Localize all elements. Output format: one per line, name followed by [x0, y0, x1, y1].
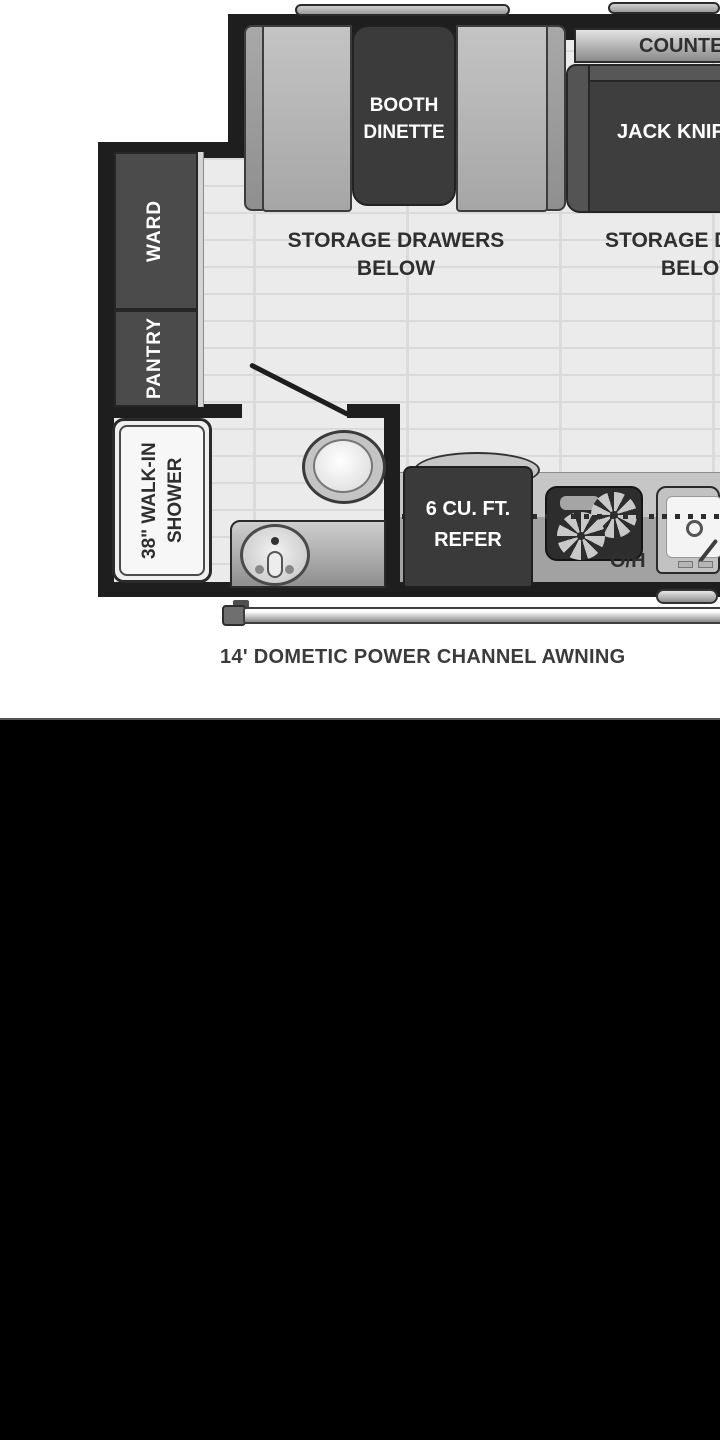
toilet-bowl: [313, 439, 373, 493]
exterior-mask: [0, 0, 228, 142]
sofa-armrest: [566, 64, 590, 213]
dinette-armrest-right: [546, 25, 566, 211]
refrigerator-label: 6 CU. FT. REFER: [403, 494, 533, 556]
shower-label-line1: 38" WALK-IN: [138, 418, 162, 583]
awning-rail: [243, 607, 720, 624]
faucet-handle-left: [255, 565, 264, 574]
sofa-label: JACK KNIFE SOFA: [617, 121, 720, 144]
bathroom-faucet: [267, 551, 283, 578]
kitchen-sink-icon: [656, 486, 720, 574]
floorplan-screenshot: BOOTH DINETTE COUNTERTOP JACK KNIFE SOFA…: [0, 0, 720, 1440]
sofa-seat: [588, 80, 720, 213]
refer-line1: 6 CU. FT.: [426, 498, 510, 520]
storage-label-right: STORAGE DRAWERS BELOW: [605, 227, 720, 283]
dinette-bench-right: [456, 25, 548, 212]
storage-left-line2: BELOW: [357, 257, 435, 280]
grab-handle: [656, 589, 718, 604]
storage-right-line2: BELOW: [661, 257, 720, 280]
storage-left-line1: STORAGE DRAWERS: [288, 229, 505, 252]
refer-line2: REFER: [434, 529, 502, 551]
window-bar-kitchen: [608, 2, 720, 14]
wall-bath-right: [384, 404, 400, 588]
awning-label: 14' DOMETIC POWER CHANNEL AWNING: [220, 646, 626, 669]
shower-label-line2: SHOWER: [164, 418, 188, 583]
strainer-right: [698, 561, 713, 568]
sink-drain-dot: [271, 537, 279, 545]
pantry-label: PANTRY: [143, 310, 167, 407]
booth-label-line2: DINETTE: [363, 122, 444, 143]
sink-drain-circle: [686, 520, 703, 537]
walk-in-shower: [112, 418, 212, 583]
dinette-table-label: BOOTH DINETTE: [352, 92, 456, 146]
countertop-label: COUNTERTOP: [639, 35, 720, 58]
overhead-label: O/H: [610, 550, 646, 573]
burner-icon-left: [557, 512, 605, 560]
window-bar-dinette: [295, 4, 510, 16]
storage-right-line1: STORAGE DRAWERS: [605, 229, 720, 252]
dinette-bench-left: [262, 25, 352, 212]
bottom-black-panel: [0, 718, 720, 1440]
booth-label-line1: BOOTH: [370, 95, 439, 116]
strainer-left: [678, 561, 693, 568]
storage-label-left: STORAGE DRAWERS BELOW: [283, 227, 509, 283]
shower-inner-line: [119, 425, 205, 576]
dinette-armrest-left: [244, 25, 264, 211]
ward-label: WARD: [143, 152, 167, 310]
faucet-handle-right: [285, 565, 294, 574]
